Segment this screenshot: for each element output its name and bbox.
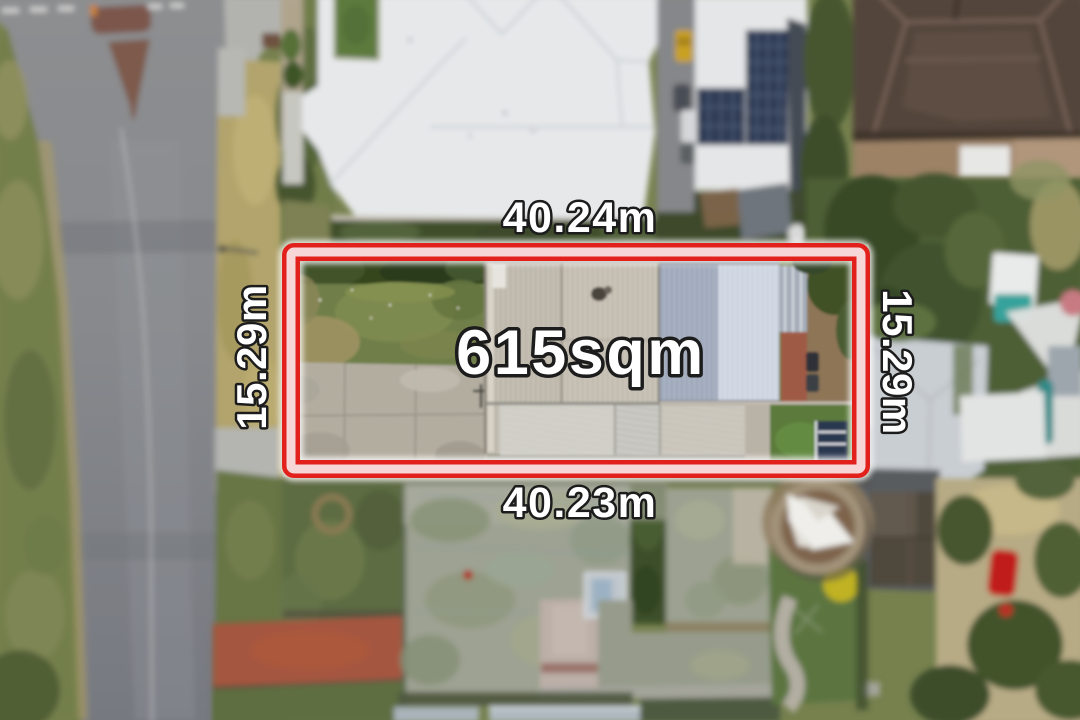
svg-text:40.23m: 40.23m: [503, 479, 658, 527]
svg-text:15.29m: 15.29m: [228, 284, 275, 429]
svg-text:615sqm: 615sqm: [456, 318, 706, 388]
svg-text:15.29m: 15.29m: [874, 289, 921, 434]
svg-text:40.24m: 40.24m: [503, 194, 658, 242]
